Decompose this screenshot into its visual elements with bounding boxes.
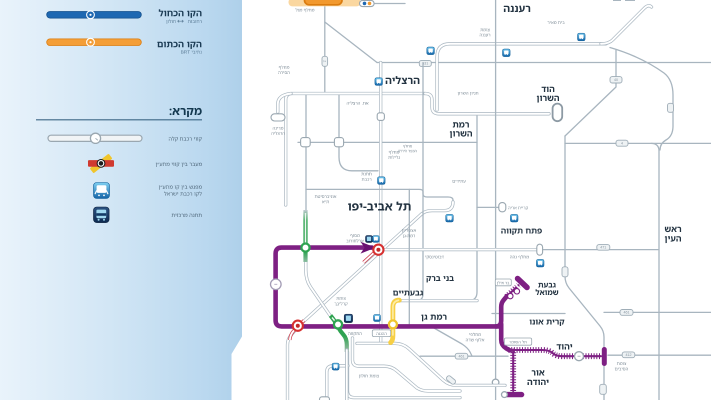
svg-text:4: 4 <box>621 142 623 146</box>
svg-text:461: 461 <box>459 355 465 359</box>
svg-text:471: 471 <box>600 246 606 250</box>
svg-text:2: 2 <box>323 60 327 62</box>
svg-text:40: 40 <box>614 78 618 82</box>
svg-text:412: 412 <box>626 353 632 357</box>
svg-text:461: 461 <box>624 311 630 315</box>
